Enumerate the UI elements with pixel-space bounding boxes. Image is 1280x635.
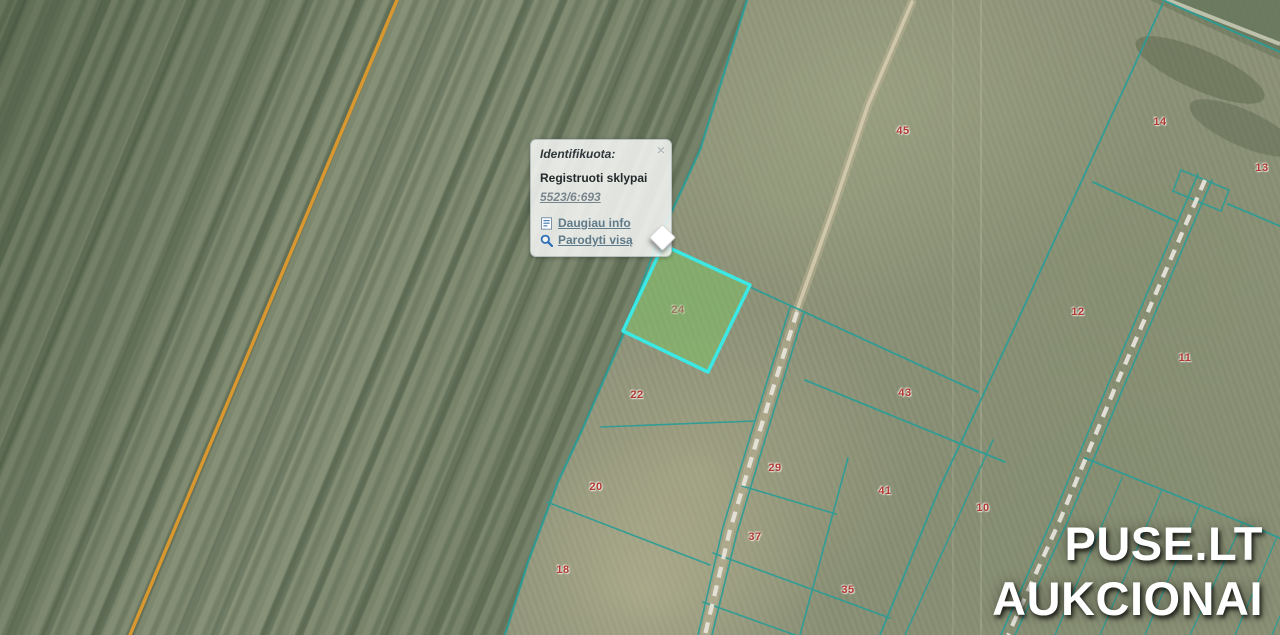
orange-boundary-line [130,0,397,635]
selected-parcel-group[interactable] [623,245,750,372]
parodyti-visa-link[interactable]: Parodyti visą [558,233,633,247]
selected-parcel[interactable] [623,245,750,372]
result-layer-name: Registruoti sklypai [540,171,661,185]
watermark-line1: PUSE.LT [992,517,1263,572]
watermark: PUSE.LT AUKCIONAI [992,517,1263,627]
map-canvas[interactable]: 4514131211242243294120371835109 Identifi… [0,0,1280,635]
daugiau-info-link[interactable]: Daugiau info [558,216,631,230]
daugiau-info-row[interactable]: Daugiau info [540,216,661,230]
watermark-line2: AUKCIONAI [992,572,1263,627]
popup-title: Identifikuota: [540,147,661,161]
info-page-icon [540,217,553,230]
magnifier-icon [540,234,553,247]
feature-id-link[interactable]: 5523/6:693 [540,190,601,204]
close-icon[interactable]: × [657,143,665,157]
ortho-seam-lines [953,0,981,635]
trees-patch [1128,0,1280,168]
parodyti-visa-row[interactable]: Parodyti visą [540,233,661,247]
